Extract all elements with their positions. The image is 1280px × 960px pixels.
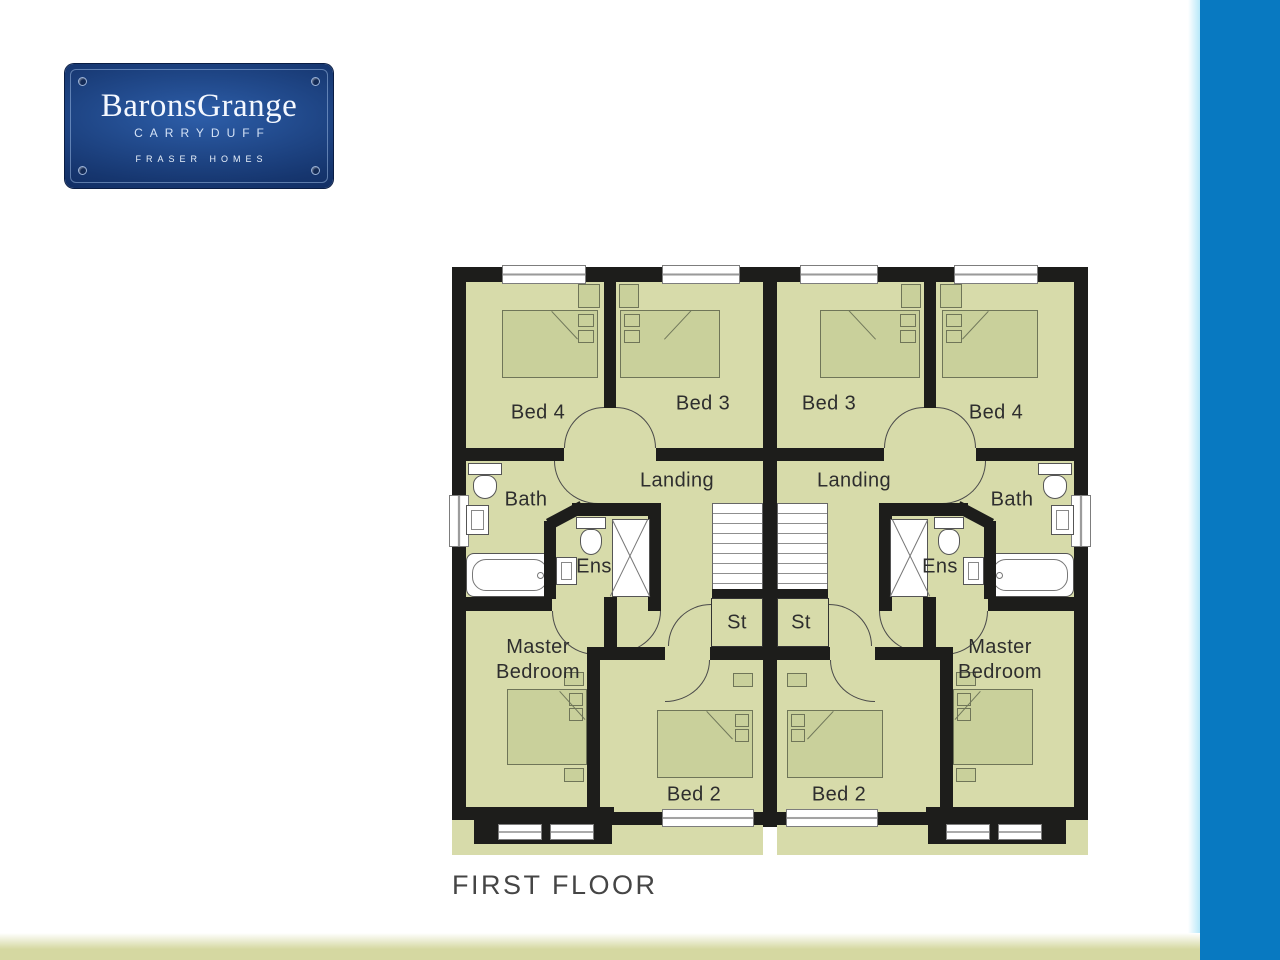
room-label-master-line1: Master bbox=[958, 635, 1042, 660]
toilet bbox=[1043, 475, 1067, 499]
pillow bbox=[791, 729, 805, 742]
room-label-landing-right: Landing bbox=[817, 470, 891, 493]
pillow bbox=[735, 729, 749, 742]
window bbox=[786, 809, 878, 827]
shower-line bbox=[610, 520, 648, 597]
bathtub-inner bbox=[992, 559, 1068, 591]
wall bbox=[924, 282, 936, 408]
room-label-bed2-left: Bed 2 bbox=[667, 784, 721, 807]
door-arc bbox=[665, 660, 710, 702]
wardrobe bbox=[578, 284, 600, 308]
room-label-bath-right: Bath bbox=[991, 489, 1034, 512]
room-label-ens-left: Ens bbox=[576, 556, 612, 579]
screw-icon bbox=[78, 77, 87, 86]
wall bbox=[886, 503, 968, 516]
bathtub bbox=[986, 553, 1074, 597]
room-label-master-line2: Bedroom bbox=[958, 660, 1042, 685]
wall bbox=[572, 503, 654, 516]
staircase bbox=[712, 503, 763, 591]
pillow bbox=[624, 330, 640, 343]
door-arc bbox=[616, 407, 656, 448]
toilet bbox=[473, 475, 497, 499]
door-arc bbox=[564, 407, 604, 448]
wall bbox=[984, 521, 996, 599]
sink-basin bbox=[1056, 510, 1069, 530]
screw-icon bbox=[78, 166, 87, 175]
screw-icon bbox=[311, 166, 320, 175]
room-label-bed4-right: Bed 4 bbox=[969, 402, 1023, 425]
pillow bbox=[624, 314, 640, 327]
door-arc bbox=[668, 604, 711, 646]
wall bbox=[452, 597, 552, 611]
logo-plaque: BaronsGrange CARRYDUFF FRASER HOMES bbox=[65, 64, 333, 188]
room-label-master-right: Master Bedroom bbox=[958, 635, 1042, 685]
wall bbox=[777, 647, 830, 660]
room-label-master-line1: Master bbox=[496, 635, 580, 660]
staircase bbox=[777, 503, 828, 591]
wall bbox=[452, 448, 564, 461]
room-label-master-line2: Bedroom bbox=[496, 660, 580, 685]
shelf bbox=[733, 673, 753, 687]
shelf bbox=[787, 673, 807, 687]
toilet bbox=[1038, 463, 1072, 475]
bathtub bbox=[466, 553, 554, 597]
wardrobe bbox=[901, 284, 921, 308]
room-label-bed2-right: Bed 2 bbox=[812, 784, 866, 807]
sink bbox=[1051, 505, 1074, 535]
sink bbox=[963, 557, 984, 585]
window bbox=[946, 824, 990, 840]
window bbox=[502, 265, 586, 284]
sink-basin bbox=[561, 562, 572, 580]
side-bar-fade bbox=[1188, 0, 1200, 960]
toilet bbox=[938, 529, 960, 555]
logo-subtitle: CARRYDUFF bbox=[127, 126, 271, 140]
room-label-st-right: St bbox=[791, 612, 811, 635]
screw-icon bbox=[311, 77, 320, 86]
side-accent-bar bbox=[1200, 0, 1280, 960]
toilet bbox=[934, 517, 964, 529]
wall bbox=[604, 282, 616, 408]
pillow bbox=[578, 330, 594, 343]
wardrobe bbox=[940, 284, 962, 308]
pillow bbox=[578, 314, 594, 327]
room-label-bed3-left: Bed 3 bbox=[676, 393, 730, 416]
door-arc bbox=[829, 604, 872, 646]
window bbox=[800, 265, 878, 284]
side-table bbox=[956, 768, 976, 782]
window bbox=[662, 265, 740, 284]
room-label-bed4-left: Bed 4 bbox=[511, 402, 565, 425]
sink-basin bbox=[968, 562, 979, 580]
pillow bbox=[900, 314, 916, 327]
sink bbox=[466, 505, 489, 535]
wall bbox=[710, 647, 763, 660]
bathtub-drain bbox=[537, 572, 544, 579]
wall bbox=[988, 597, 1088, 611]
wall bbox=[544, 521, 556, 599]
pillow bbox=[735, 714, 749, 727]
pillow bbox=[946, 330, 962, 343]
toilet bbox=[468, 463, 502, 475]
toilet bbox=[580, 529, 602, 555]
window bbox=[662, 809, 754, 827]
wall bbox=[656, 448, 763, 461]
shower bbox=[612, 519, 650, 597]
floor-caption: FIRST FLOOR bbox=[452, 870, 658, 901]
room-label-master-left: Master Bedroom bbox=[496, 635, 580, 685]
logo-title: BaronsGrange bbox=[101, 89, 298, 123]
room-label-ens-right: Ens bbox=[922, 556, 958, 579]
door-arc bbox=[554, 461, 598, 504]
pillow bbox=[946, 314, 962, 327]
door-arc bbox=[830, 660, 875, 702]
wardrobe bbox=[619, 284, 639, 308]
sink bbox=[556, 557, 577, 585]
window bbox=[954, 265, 1038, 284]
logo-footer: FRASER HOMES bbox=[130, 154, 267, 164]
wall bbox=[587, 659, 600, 819]
window bbox=[498, 824, 542, 840]
sink-basin bbox=[471, 510, 484, 530]
room-label-bed3-right: Bed 3 bbox=[802, 393, 856, 416]
floor-plan: Bed 4 Bed 3 Landing Bath Ens Master Bedr… bbox=[452, 267, 1088, 855]
wall bbox=[777, 448, 884, 461]
room-label-bath-left: Bath bbox=[505, 489, 548, 512]
pillow bbox=[900, 330, 916, 343]
window bbox=[550, 824, 594, 840]
pillow bbox=[791, 714, 805, 727]
window bbox=[998, 824, 1042, 840]
room-label-landing-left: Landing bbox=[640, 470, 714, 493]
side-table bbox=[564, 768, 584, 782]
shower-line bbox=[612, 520, 650, 597]
bathtub-drain bbox=[996, 572, 1003, 579]
party-wall bbox=[763, 267, 777, 827]
door-arc bbox=[884, 407, 924, 448]
door-arc bbox=[942, 461, 986, 504]
window bbox=[1071, 495, 1091, 547]
wall bbox=[976, 448, 1088, 461]
toilet bbox=[576, 517, 606, 529]
bottom-accent-bar bbox=[0, 933, 1200, 960]
room-label-st-left: St bbox=[727, 612, 747, 635]
wall bbox=[940, 659, 953, 819]
